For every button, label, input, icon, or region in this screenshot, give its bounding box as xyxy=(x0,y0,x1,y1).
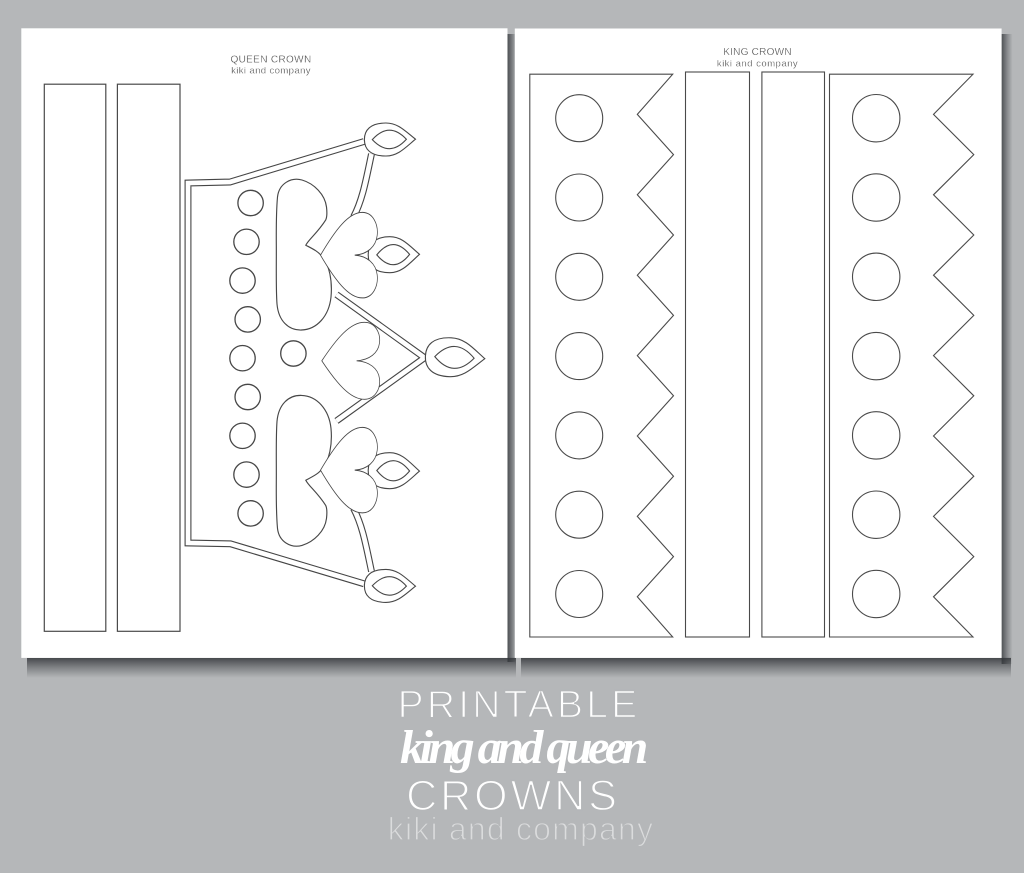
svg-text:QUEEN CROWN: QUEEN CROWN xyxy=(230,55,311,66)
svg-text:kiki and company: kiki and company xyxy=(231,66,311,77)
svg-text:KING CROWN: KING CROWN xyxy=(723,47,792,58)
svg-text:kiki and company: kiki and company xyxy=(388,811,654,847)
svg-text:king and queen: king and queen xyxy=(400,721,647,774)
svg-text:kiki and company: kiki and company xyxy=(717,59,798,70)
